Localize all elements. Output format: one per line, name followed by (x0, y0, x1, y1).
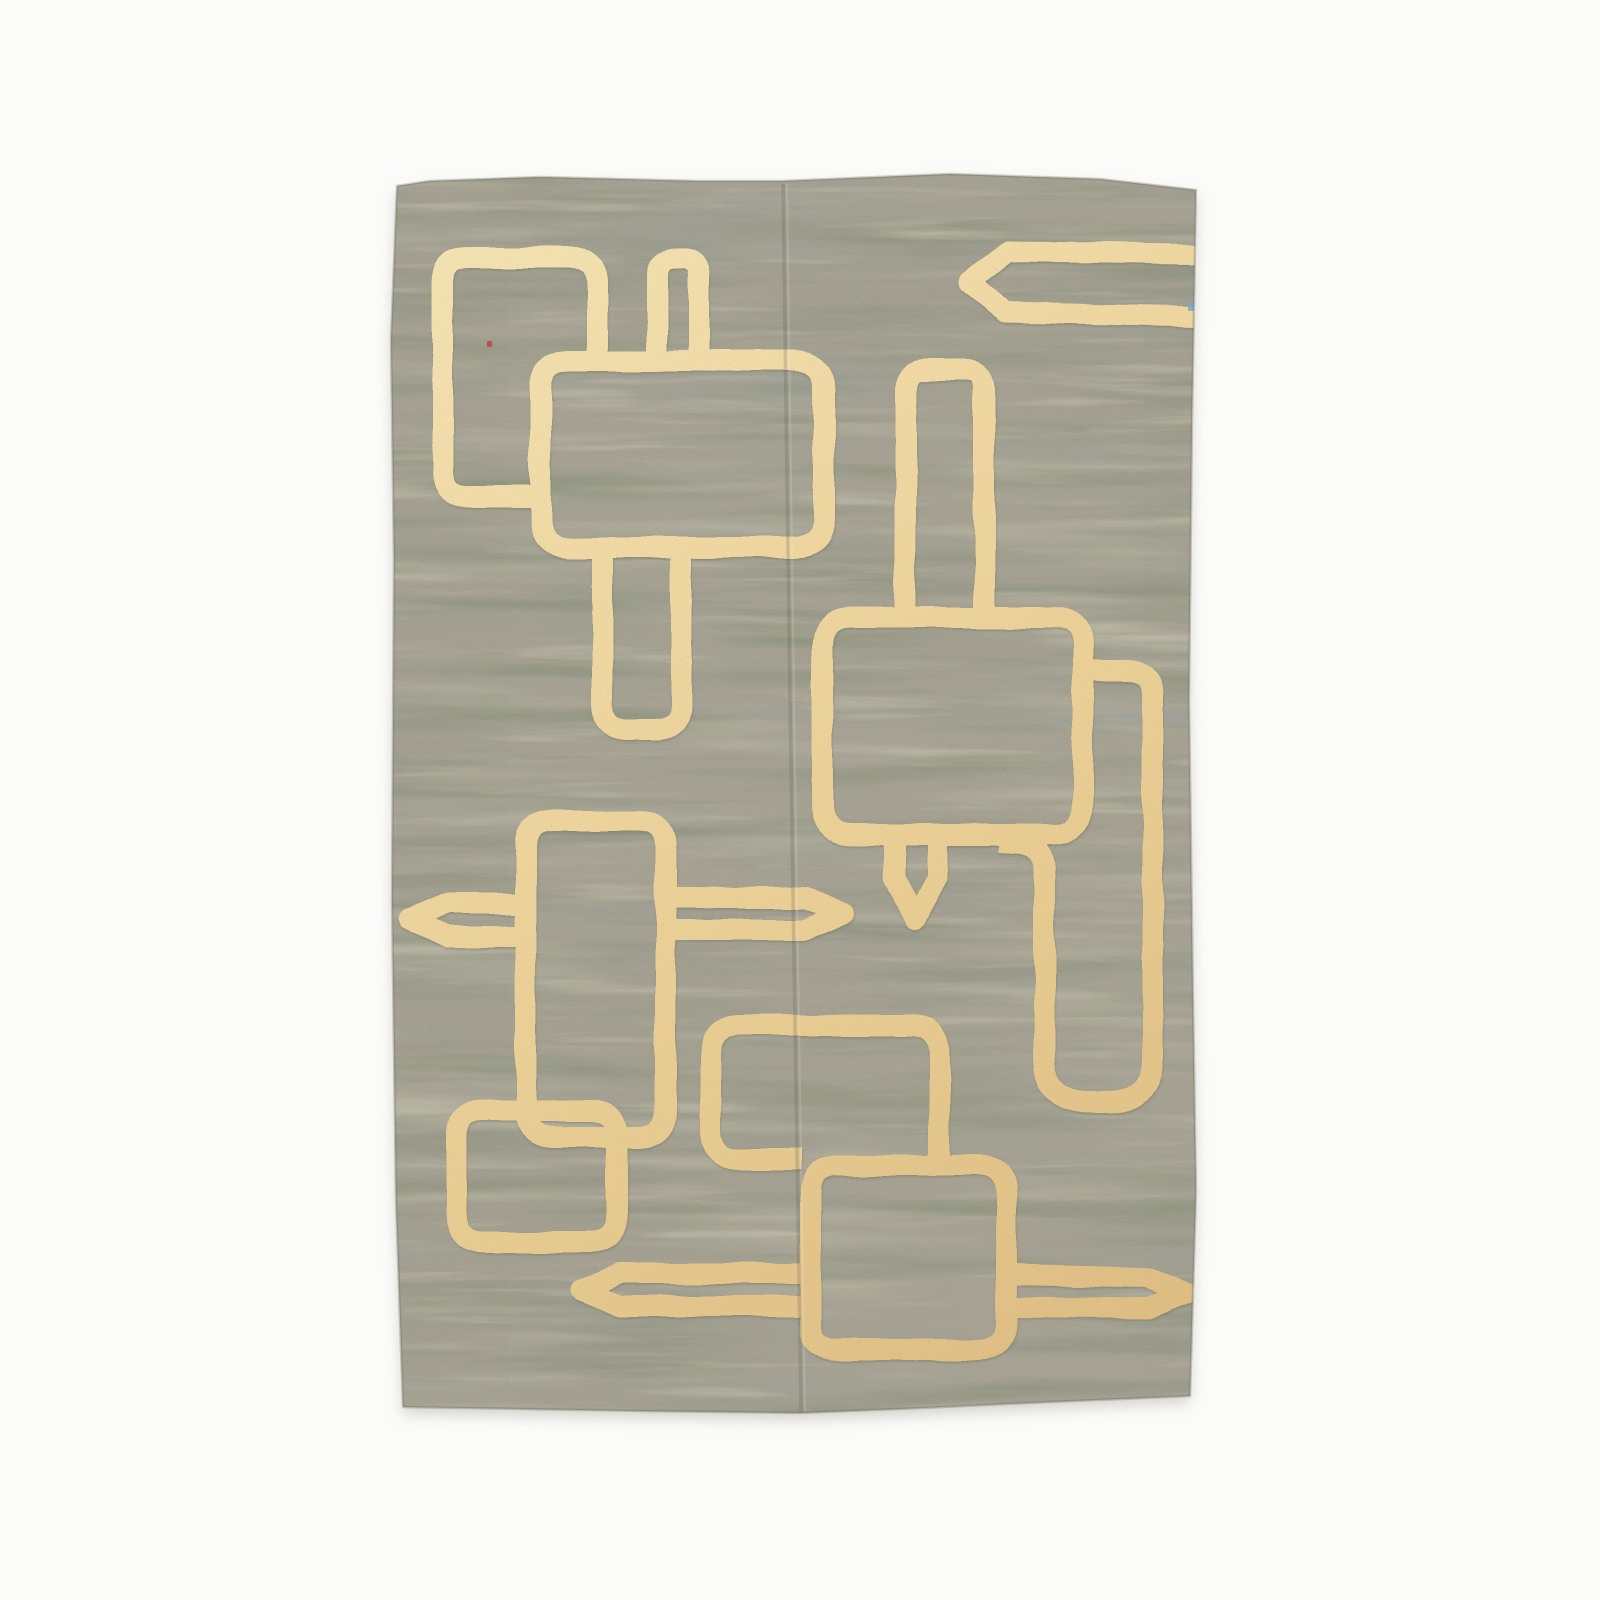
rug (388, 172, 1200, 1420)
rug-illustration (0, 0, 1600, 1600)
red-weft-fleck (487, 341, 492, 347)
photo-canvas (0, 0, 1600, 1600)
